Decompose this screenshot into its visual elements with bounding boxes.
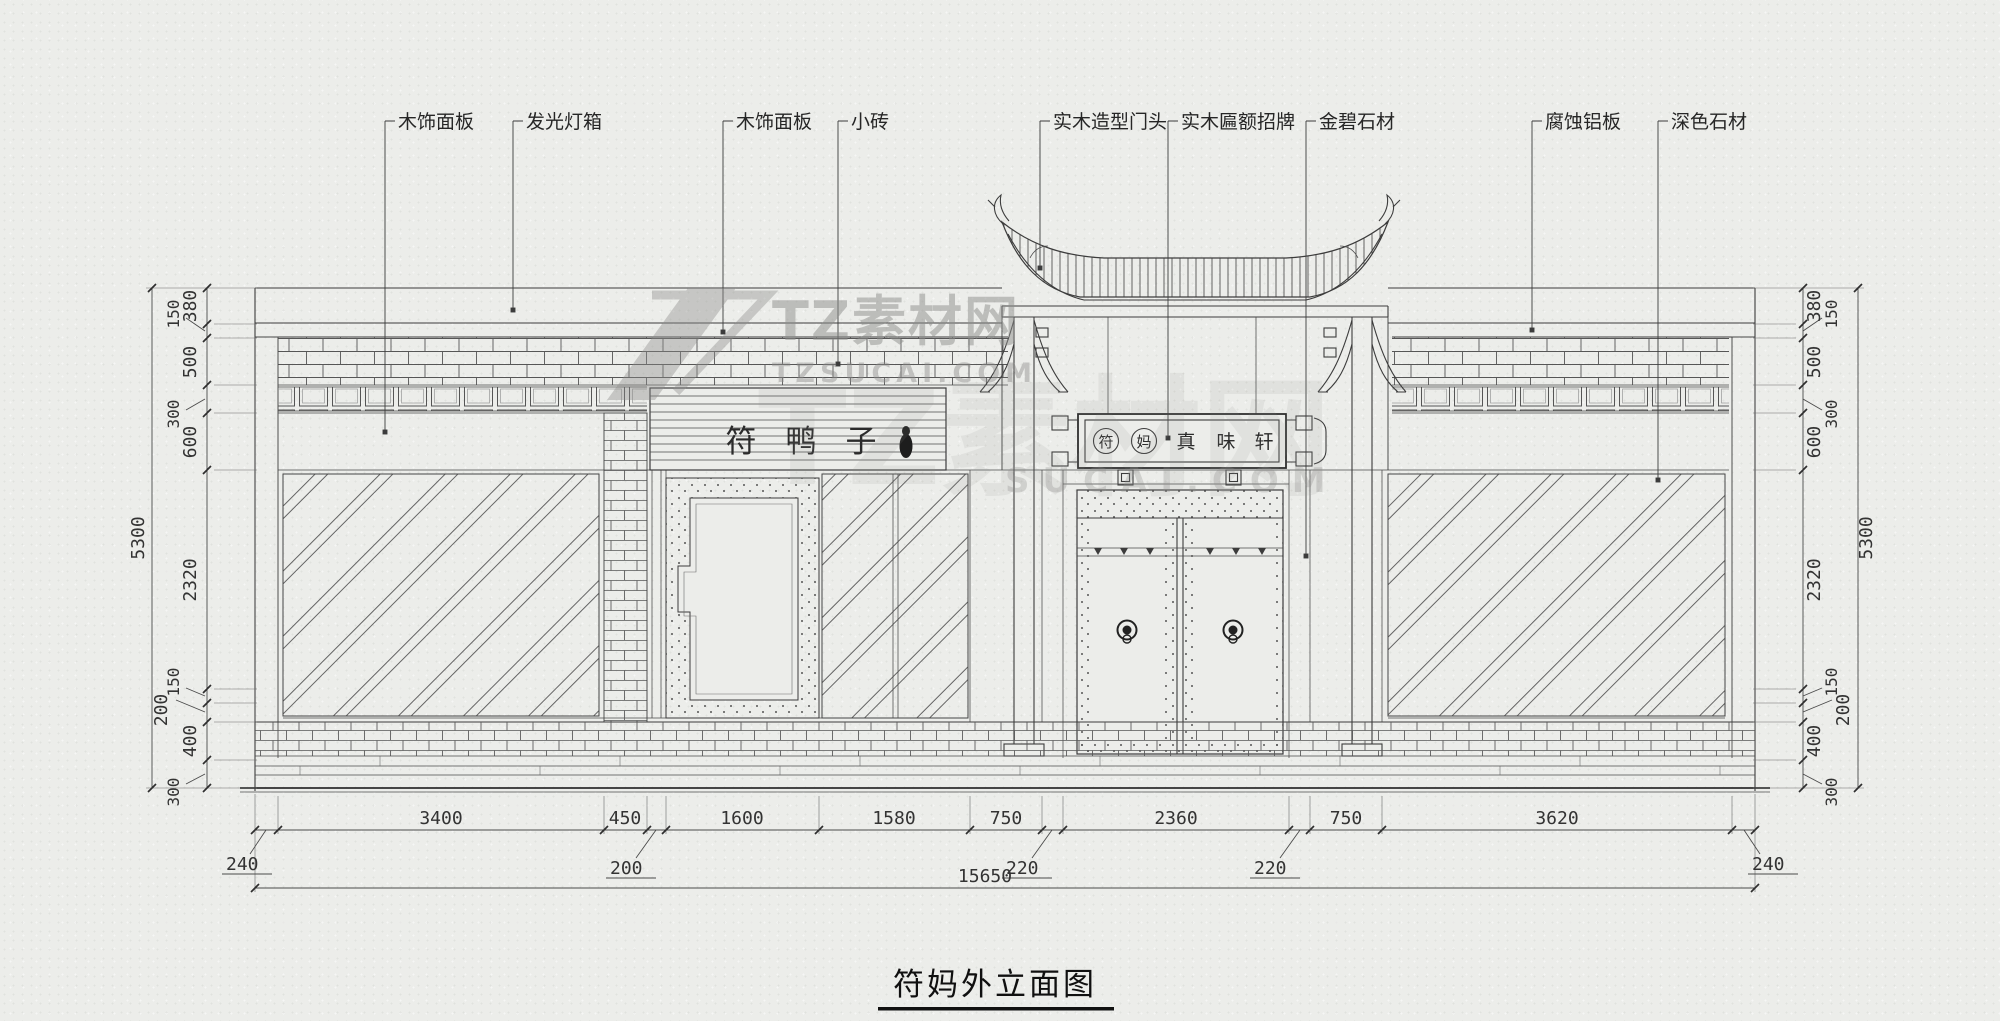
dim-leader-value: 200 (610, 858, 643, 879)
dim-value: 300 (164, 778, 183, 807)
callout-label: 实木匾额招牌 (1181, 111, 1295, 133)
dim-value: 150 (164, 300, 183, 329)
dim-value: 150 (1822, 300, 1841, 329)
dim-value: 150 (164, 668, 183, 697)
callout-label: 木饰面板 (398, 111, 474, 133)
plinth (255, 722, 1755, 775)
title-block: 符妈外立面图 (878, 967, 1114, 1011)
callout-label: 腐蚀铝板 (1545, 111, 1621, 133)
right-wall-panel (1388, 474, 1725, 716)
dim-value: 500 (180, 346, 201, 379)
brick-column (604, 413, 647, 722)
callout-label: 发光灯箱 (526, 111, 602, 133)
door-frame-strip (647, 470, 666, 718)
callout-label: 深色石材 (1671, 111, 1747, 133)
dim-right: 380 150 500 300 600 2320 150 200 400 300… (1753, 284, 1877, 806)
roof-eave-curl-left (988, 195, 1009, 224)
watermark-brand: TZ素材网 (772, 290, 1020, 353)
dim-value: 500 (1804, 346, 1825, 379)
dim-value: 300 (164, 400, 183, 429)
dim-total-left: 5300 (128, 516, 149, 559)
left-wall-panel (283, 474, 599, 716)
dim-value: 150 (1822, 668, 1841, 697)
dim-value: 2360 (1154, 808, 1197, 829)
dim-value: 750 (1330, 808, 1363, 829)
dim-value: 300 (1822, 778, 1841, 807)
elevation-drawing-canvas: 符 鸭 子 (0, 0, 2000, 1021)
dim-value: 2320 (180, 558, 201, 601)
dim-value: 3620 (1535, 808, 1578, 829)
dim-value: 400 (180, 725, 201, 758)
callout-label: 实木造型门头 (1053, 111, 1167, 133)
dim-value: 1600 (720, 808, 763, 829)
dim-value: 750 (990, 808, 1023, 829)
dim-value: 600 (1804, 426, 1825, 459)
dim-leader-value: 240 (226, 854, 259, 875)
dim-leader-value: 220 (1254, 858, 1287, 879)
dim-value: 200 (1833, 694, 1854, 727)
callout-label: 木饰面板 (736, 111, 812, 133)
callout-label: 小砖 (851, 111, 889, 133)
dim-left: 380 150 500 300 600 2320 150 200 400 300… (128, 284, 257, 806)
left-pilaster (255, 337, 278, 722)
dim-value: 300 (1822, 400, 1841, 429)
dim-value: 600 (180, 426, 201, 459)
dim-value: 200 (151, 694, 172, 727)
dim-value: 2320 (1804, 558, 1825, 601)
gate-roof (988, 195, 1400, 300)
storefront-sign-char: 符 (726, 424, 757, 460)
watermark-ghost-domain: SUCAI.COM (1005, 461, 1339, 501)
dim-value: 400 (1804, 725, 1825, 758)
ground-line (240, 788, 1770, 792)
dim-value: 1580 (872, 808, 915, 829)
dim-value: 380 (180, 290, 201, 323)
dim-total-right: 5300 (1856, 516, 1877, 559)
dim-bottom-total: 15650 (958, 866, 1012, 887)
dim-value: 450 (609, 808, 642, 829)
roof-eave-curl-right (1379, 195, 1400, 224)
dim-value: 3400 (419, 808, 462, 829)
dim-bottom: 3400 450 1600 1580 750 2360 750 3620 240… (222, 794, 1798, 892)
dim-leader-value: 240 (1752, 854, 1785, 875)
drawing-title: 符妈外立面图 (893, 967, 1097, 1003)
title-underline (878, 1007, 1114, 1011)
right-pilaster (1732, 337, 1755, 722)
callout-label: 金碧石材 (1319, 111, 1395, 133)
